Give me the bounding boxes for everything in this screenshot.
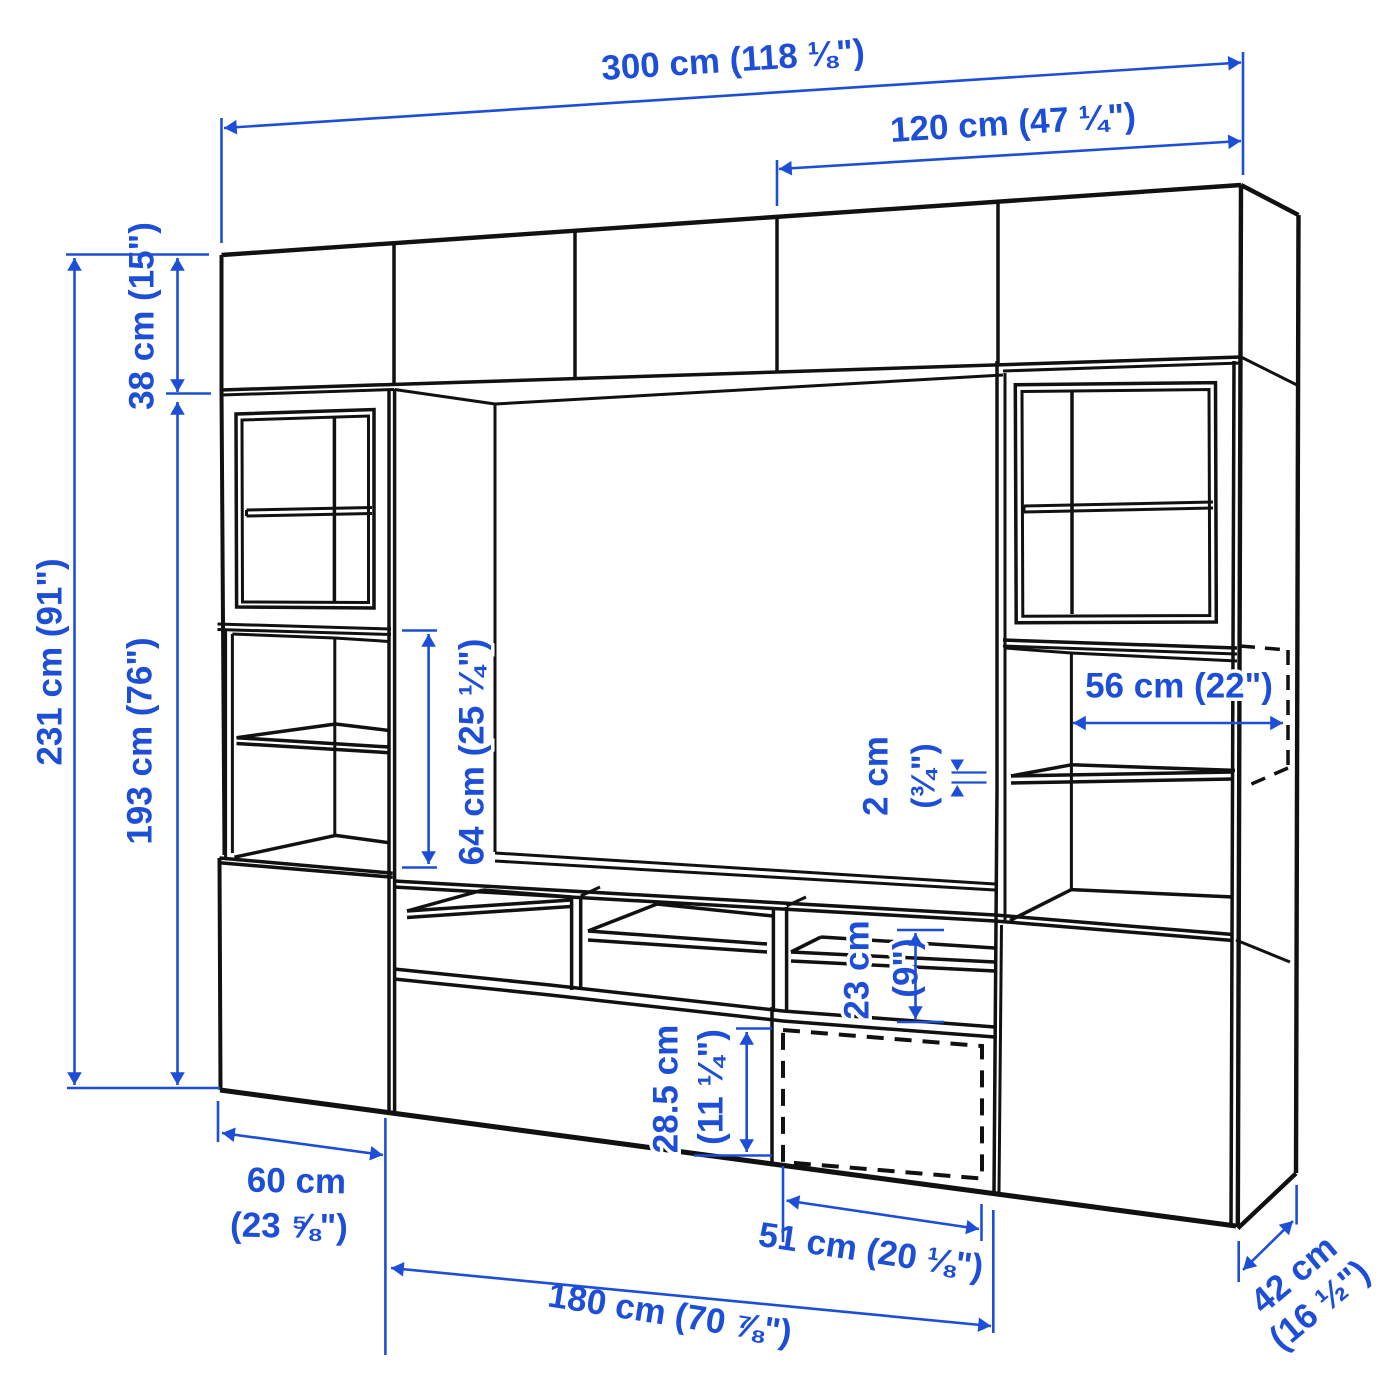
svg-text:231 cm (91"): 231 cm (91") bbox=[31, 558, 70, 765]
svg-text:28.5 cm: 28.5 cm bbox=[647, 1025, 686, 1153]
svg-text:64 cm (25 ¼"): 64 cm (25 ¼") bbox=[453, 639, 492, 866]
svg-text:(23 ⅝"): (23 ⅝") bbox=[230, 1205, 348, 1246]
svg-text:(¾"): (¾") bbox=[905, 743, 942, 808]
svg-text:56 cm (22"): 56 cm (22") bbox=[1085, 667, 1273, 706]
svg-text:(11 ¼"): (11 ¼") bbox=[692, 1029, 731, 1145]
svg-text:60 cm: 60 cm bbox=[247, 1161, 347, 1202]
svg-text:38 cm (15"): 38 cm (15") bbox=[123, 222, 162, 410]
svg-text:193 cm (76"): 193 cm (76") bbox=[121, 637, 160, 844]
svg-text:2 cm: 2 cm bbox=[857, 736, 896, 816]
svg-text:(9"): (9") bbox=[887, 938, 926, 997]
svg-text:23 cm: 23 cm bbox=[838, 920, 877, 1019]
